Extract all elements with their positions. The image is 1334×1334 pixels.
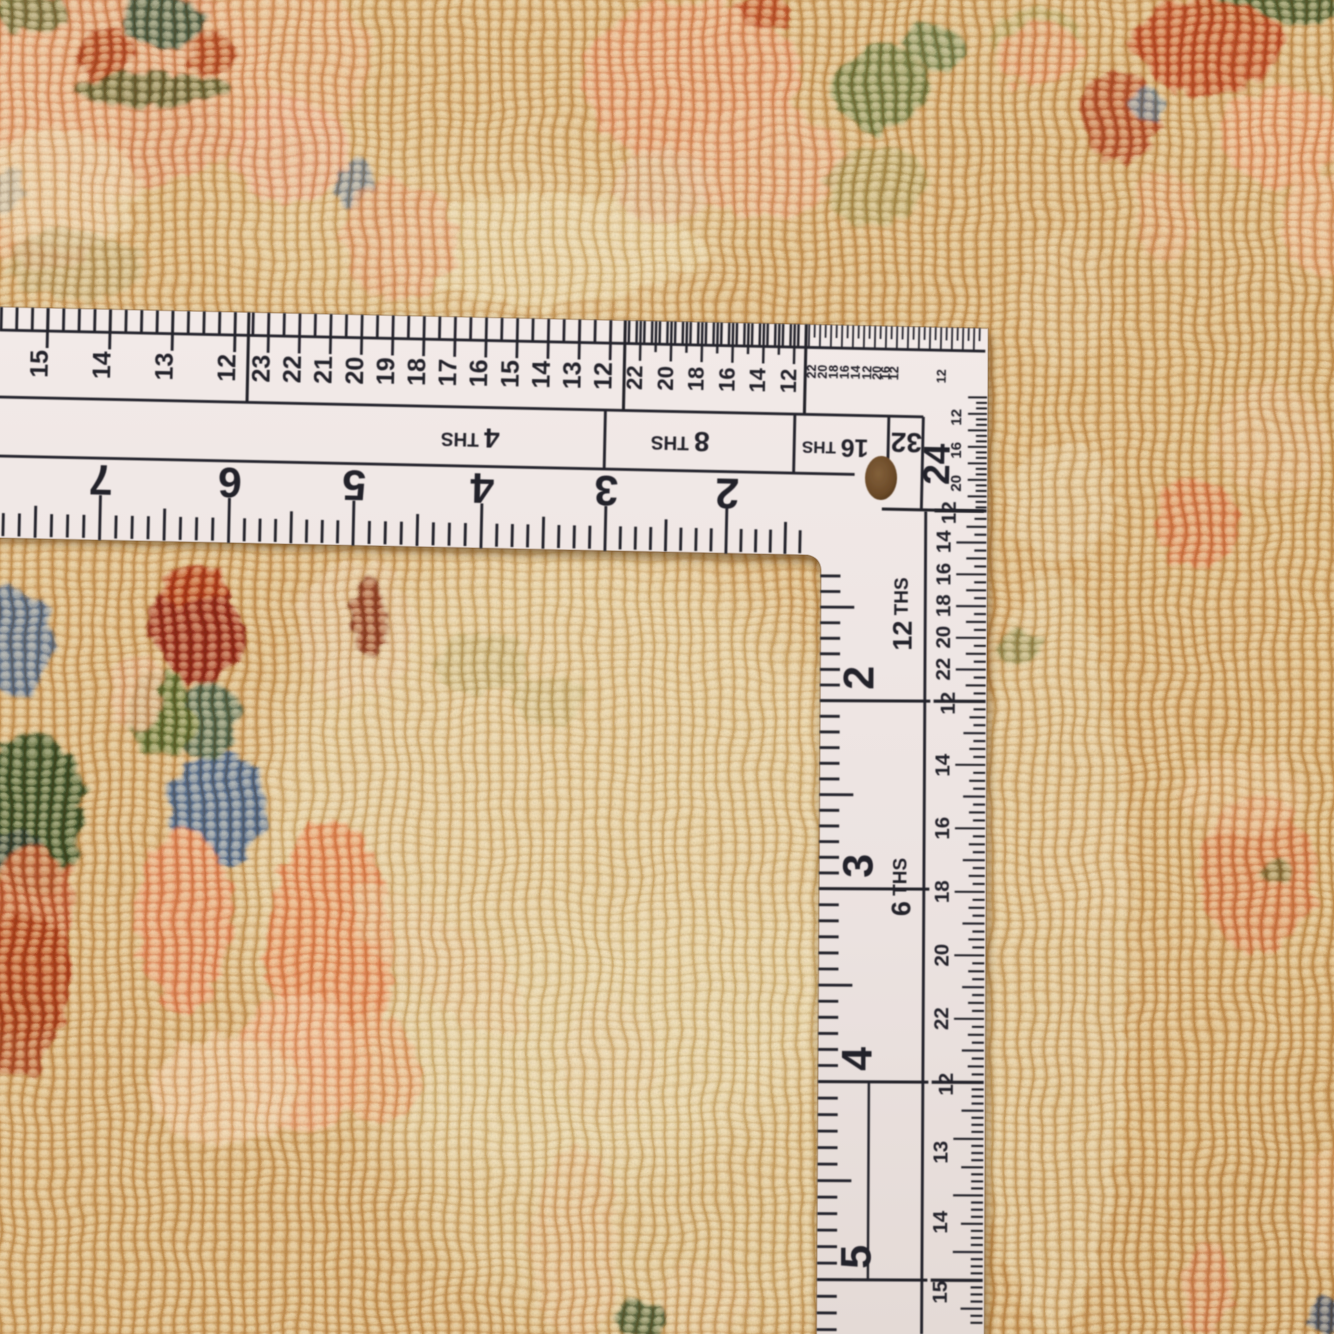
svg-text:14: 14 (88, 351, 117, 379)
svg-text:18: 18 (683, 366, 709, 391)
svg-text:14: 14 (527, 360, 556, 388)
svg-text:16: 16 (932, 563, 955, 586)
svg-text:22: 22 (279, 355, 308, 383)
svg-text:16: 16 (931, 817, 954, 840)
svg-text:12: 12 (937, 692, 960, 715)
svg-text:2: 2 (835, 666, 883, 690)
svg-text:14: 14 (931, 753, 954, 777)
svg-text:20: 20 (932, 626, 955, 649)
svg-text:22: 22 (930, 1007, 953, 1030)
svg-text:4: 4 (833, 1047, 881, 1071)
svg-text:18: 18 (932, 594, 955, 617)
svg-text:3: 3 (834, 854, 882, 878)
svg-text:16: 16 (714, 367, 740, 392)
svg-text:13: 13 (150, 352, 179, 380)
svg-text:5: 5 (832, 1245, 880, 1269)
svg-text:13: 13 (558, 361, 587, 389)
svg-text:23: 23 (247, 354, 276, 382)
svg-text:12: 12 (935, 1073, 958, 1096)
svg-text:17: 17 (434, 358, 463, 386)
svg-text:22: 22 (622, 365, 648, 390)
svg-text:20: 20 (341, 356, 370, 384)
svg-text:14: 14 (745, 367, 771, 393)
svg-text:12: 12 (213, 354, 242, 382)
svg-text:16: 16 (948, 442, 965, 459)
svg-text:12: 12 (935, 369, 949, 383)
svg-text:18: 18 (403, 358, 432, 386)
svg-text:20: 20 (653, 366, 679, 391)
svg-text:21: 21 (310, 356, 339, 384)
svg-text:12: 12 (938, 501, 961, 524)
svg-text:12: 12 (776, 368, 802, 393)
svg-text:13: 13 (929, 1141, 952, 1164)
svg-text:16: 16 (465, 359, 494, 387)
svg-text:12: 12 (589, 362, 618, 390)
svg-text:15: 15 (929, 1281, 952, 1304)
svg-text:20: 20 (948, 475, 965, 492)
svg-text:22: 22 (932, 658, 955, 681)
svg-text:18: 18 (931, 880, 954, 903)
svg-text:14: 14 (933, 530, 956, 554)
svg-text:15: 15 (25, 350, 54, 378)
svg-text:15: 15 (496, 360, 525, 388)
svg-text:12: 12 (948, 409, 965, 426)
svg-text:14: 14 (929, 1210, 952, 1234)
svg-text:19: 19 (372, 357, 401, 385)
svg-text:20: 20 (930, 944, 953, 967)
svg-text:12: 12 (887, 366, 901, 380)
